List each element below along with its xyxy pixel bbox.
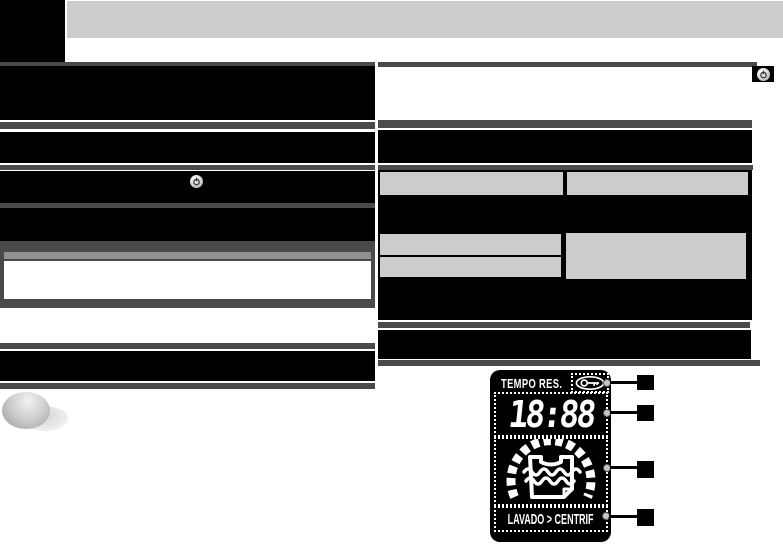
note-box-content — [4, 261, 371, 299]
callout-marker-2 — [637, 405, 654, 421]
time-display: 18:88 — [507, 396, 596, 433]
section-bar — [378, 322, 750, 328]
key-icon — [575, 376, 605, 390]
table-cell — [566, 233, 746, 279]
stone-graphic — [2, 392, 50, 429]
section-bar — [378, 120, 752, 128]
manual-page: TEMPO RES. 18:88 LAVADO — [0, 0, 783, 548]
section-bar — [0, 383, 375, 389]
machine-display-illustration: TEMPO RES. 18:88 LAVADO — [490, 370, 611, 542]
time-display-box: 18:88 — [494, 392, 608, 437]
section-bar — [378, 62, 757, 67]
redacted-text-block — [378, 130, 752, 163]
redacted-text-block — [0, 66, 375, 120]
redacted-text-block — [378, 330, 751, 359]
header-bar — [67, 1, 783, 38]
drum-display-box — [494, 437, 608, 506]
display-title: TEMPO RES. — [501, 376, 562, 391]
callout-line — [610, 381, 638, 384]
callout-line — [609, 515, 638, 518]
drum-progress-icon — [496, 439, 606, 504]
power-glyph — [192, 177, 201, 186]
callout-line — [610, 466, 638, 469]
note-box — [0, 241, 375, 308]
laundry-garment-icon — [524, 457, 580, 497]
status-text: LAVADO > CENTRIF — [508, 511, 594, 528]
section-bar — [0, 343, 375, 349]
table-cell — [380, 172, 563, 195]
section-bar — [0, 165, 375, 170]
callout-marker-1 — [637, 375, 654, 390]
power-button-icon — [190, 175, 203, 188]
section-bar — [378, 360, 760, 366]
status-display-box: LAVADO > CENTRIF — [494, 506, 608, 532]
redacted-text-block — [0, 132, 375, 163]
callout-line — [610, 411, 638, 414]
redacted-text-block — [0, 171, 375, 203]
table-cell — [567, 172, 748, 195]
power-button-box — [752, 66, 774, 82]
table-cell — [380, 257, 561, 277]
redacted-text-block — [0, 208, 375, 241]
page-corner-tab — [0, 0, 65, 62]
redacted-text-block — [0, 351, 375, 381]
note-box-title-strip — [4, 252, 371, 259]
power-button-icon — [757, 68, 770, 81]
program-table — [378, 170, 752, 320]
table-cell — [380, 234, 561, 255]
power-glyph — [759, 70, 768, 79]
section-bar — [0, 122, 375, 129]
callout-marker-3 — [637, 461, 654, 478]
callout-marker-4 — [637, 509, 654, 526]
